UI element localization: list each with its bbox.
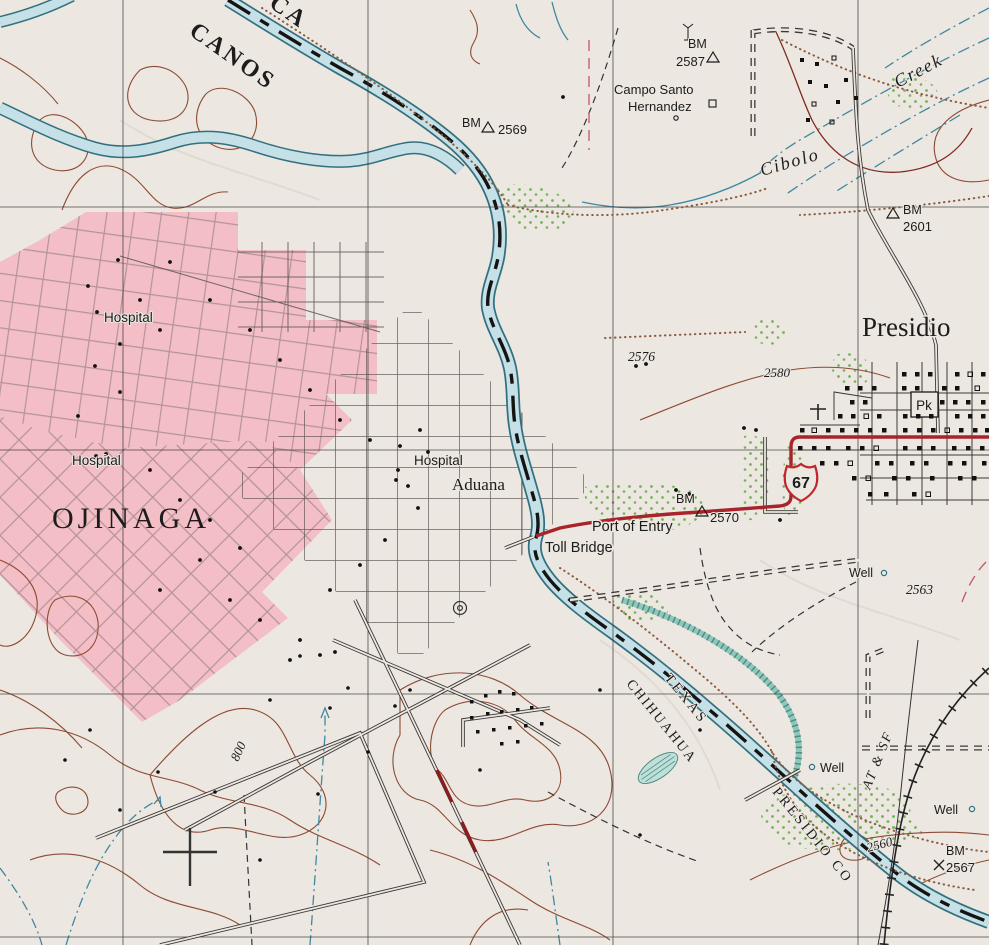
building: [917, 446, 922, 451]
label-hospital-e: Hospital: [414, 453, 463, 468]
building: [516, 708, 520, 712]
building: [906, 476, 911, 481]
building: [512, 692, 516, 696]
building: [968, 414, 973, 419]
label-toll-bridge: Toll Bridge: [545, 540, 613, 556]
building-dot: [366, 750, 370, 754]
building: [826, 428, 831, 433]
building: [915, 386, 920, 391]
building-dot: [308, 388, 312, 392]
building-dot: [158, 588, 162, 592]
building: [845, 386, 850, 391]
building-dot: [328, 588, 332, 592]
building-dot: [416, 506, 420, 510]
route-shield-number: 67: [792, 475, 810, 492]
building-dot: [358, 563, 362, 567]
building-dot: [88, 728, 92, 732]
building: [931, 428, 936, 433]
building: [815, 62, 819, 66]
building: [851, 414, 856, 419]
label-elev-2563: 2563: [906, 582, 933, 597]
building: [917, 428, 922, 433]
building: [476, 730, 480, 734]
building-dot: [148, 468, 152, 472]
building: [858, 386, 863, 391]
building: [850, 400, 855, 405]
building-dot: [208, 298, 212, 302]
building-dot: [298, 654, 302, 658]
building: [875, 461, 880, 466]
building: [508, 726, 512, 730]
building-dot: [396, 468, 400, 472]
building-dot: [63, 758, 67, 762]
building: [953, 400, 958, 405]
building-dot: [346, 686, 350, 690]
building: [952, 446, 957, 451]
building-dot: [138, 298, 142, 302]
building: [931, 446, 936, 451]
building-dot: [638, 833, 642, 837]
label-bm-2567-prefix: BM: [946, 844, 965, 858]
building-dot: [561, 95, 565, 99]
building-dot: [398, 444, 402, 448]
building: [470, 716, 474, 720]
building: [852, 476, 857, 481]
building: [929, 414, 934, 419]
building-dot: [754, 428, 758, 432]
building: [910, 461, 915, 466]
label-campo-santo-2: Hernandez: [628, 99, 692, 114]
building: [884, 492, 889, 497]
label-well-south: Well: [820, 761, 844, 775]
building-dot: [118, 342, 122, 346]
building: [868, 428, 873, 433]
building: [806, 118, 810, 122]
building: [824, 84, 828, 88]
building: [955, 386, 960, 391]
building: [872, 386, 877, 391]
building: [930, 476, 935, 481]
label-bm-2601-value: 2601: [903, 219, 932, 234]
label-bm-2587-prefix: BM: [688, 37, 707, 51]
building-dot: [338, 418, 342, 422]
building: [902, 386, 907, 391]
building-dot: [393, 704, 397, 708]
building: [844, 78, 848, 82]
building: [903, 414, 908, 419]
building-dot: [742, 426, 746, 430]
building: [524, 724, 528, 728]
building: [982, 461, 987, 466]
building: [985, 428, 989, 433]
building: [948, 461, 953, 466]
building-dot: [298, 638, 302, 642]
building: [915, 372, 920, 377]
label-bm-2587-value: 2587: [676, 54, 705, 69]
building-dot: [288, 658, 292, 662]
building: [812, 446, 817, 451]
building-dot: [394, 478, 398, 482]
building: [958, 476, 963, 481]
topographic-map: 67 CA CANOS OJINAGA Presidio Hospital Ho…: [0, 0, 989, 945]
building-dot: [598, 688, 602, 692]
building: [854, 96, 858, 100]
building: [826, 446, 831, 451]
building-dot: [406, 484, 410, 488]
building: [836, 100, 840, 104]
label-port-of-entry: Port of Entry: [592, 519, 673, 535]
building-dot: [238, 546, 242, 550]
building-dot: [316, 792, 320, 796]
label-bm-2570-prefix: BM: [676, 492, 695, 506]
building: [492, 728, 496, 732]
building: [800, 428, 805, 433]
building-dot: [778, 518, 782, 522]
building-dot: [698, 728, 702, 732]
label-park: Pk: [916, 398, 932, 413]
building-dot: [408, 688, 412, 692]
building: [808, 80, 812, 84]
building: [928, 372, 933, 377]
building: [962, 461, 967, 466]
building-dot: [383, 538, 387, 542]
building-dot: [93, 364, 97, 368]
building-dot: [418, 428, 422, 432]
building-dot: [318, 653, 322, 657]
building-dot: [168, 260, 172, 264]
building: [798, 446, 803, 451]
label-aduana: Aduana: [452, 475, 505, 494]
building: [540, 722, 544, 726]
label-bm-2569-prefix: BM: [462, 116, 481, 130]
building: [834, 461, 839, 466]
building: [500, 710, 504, 714]
building: [912, 492, 917, 497]
label-hospital-nw: Hospital: [104, 310, 153, 325]
building: [924, 461, 929, 466]
building: [916, 414, 921, 419]
building: [498, 690, 502, 694]
building-dot: [118, 390, 122, 394]
building-dot: [333, 650, 337, 654]
building: [863, 400, 868, 405]
building: [981, 372, 986, 377]
building: [942, 386, 947, 391]
building: [981, 414, 986, 419]
label-bm-2570-value: 2570: [710, 510, 739, 525]
building: [902, 372, 907, 377]
building-dot: [258, 858, 262, 862]
building: [838, 414, 843, 419]
building-dot: [248, 328, 252, 332]
building: [903, 446, 908, 451]
label-bm-2569-value: 2569: [498, 122, 527, 137]
building: [882, 428, 887, 433]
building: [980, 446, 985, 451]
building: [500, 742, 504, 746]
building: [516, 740, 520, 744]
building: [892, 476, 897, 481]
building: [800, 58, 804, 62]
map-canvas: 67 CA CANOS OJINAGA Presidio Hospital Ho…: [0, 0, 989, 945]
building: [972, 476, 977, 481]
building: [966, 446, 971, 451]
building: [484, 694, 488, 698]
building: [820, 461, 825, 466]
building-dot: [213, 790, 217, 794]
building-dot: [118, 808, 122, 812]
building-dot: [228, 598, 232, 602]
building: [486, 712, 490, 716]
building-dot: [116, 258, 120, 262]
building-dot: [76, 414, 80, 418]
label-contour-2580: 2580: [764, 365, 791, 380]
building-dot: [86, 284, 90, 288]
label-bm-2601-prefix: BM: [903, 203, 922, 217]
building: [846, 446, 851, 451]
building-dot: [278, 358, 282, 362]
label-campo-santo-1: Campo Santo: [614, 82, 694, 97]
building: [940, 400, 945, 405]
label-well-center: Well: [849, 566, 873, 580]
label-hospital-w: Hospital: [72, 453, 121, 468]
label-presidio: Presidio: [862, 312, 951, 342]
building: [973, 428, 978, 433]
building: [860, 446, 865, 451]
label-well-east: Well: [934, 803, 958, 817]
building-dot: [198, 558, 202, 562]
building: [854, 428, 859, 433]
building: [959, 428, 964, 433]
building: [966, 400, 971, 405]
building: [955, 372, 960, 377]
building-dot: [95, 310, 99, 314]
building-dot: [258, 618, 262, 622]
building: [877, 414, 882, 419]
building: [889, 461, 894, 466]
building: [530, 706, 534, 710]
label-ojinaga: OJINAGA: [52, 502, 210, 535]
building: [903, 428, 908, 433]
building-dot: [634, 364, 638, 368]
building: [955, 414, 960, 419]
building-dot: [268, 698, 272, 702]
building-dot: [368, 438, 372, 442]
building: [840, 428, 845, 433]
building-dot: [158, 328, 162, 332]
building: [470, 700, 474, 704]
building-dot: [328, 706, 332, 710]
building: [981, 400, 986, 405]
building: [868, 492, 873, 497]
building-dot: [478, 768, 482, 772]
label-bm-2567-value: 2567: [946, 860, 975, 875]
label-elev-2576: 2576: [628, 349, 655, 364]
building-dot: [156, 770, 160, 774]
